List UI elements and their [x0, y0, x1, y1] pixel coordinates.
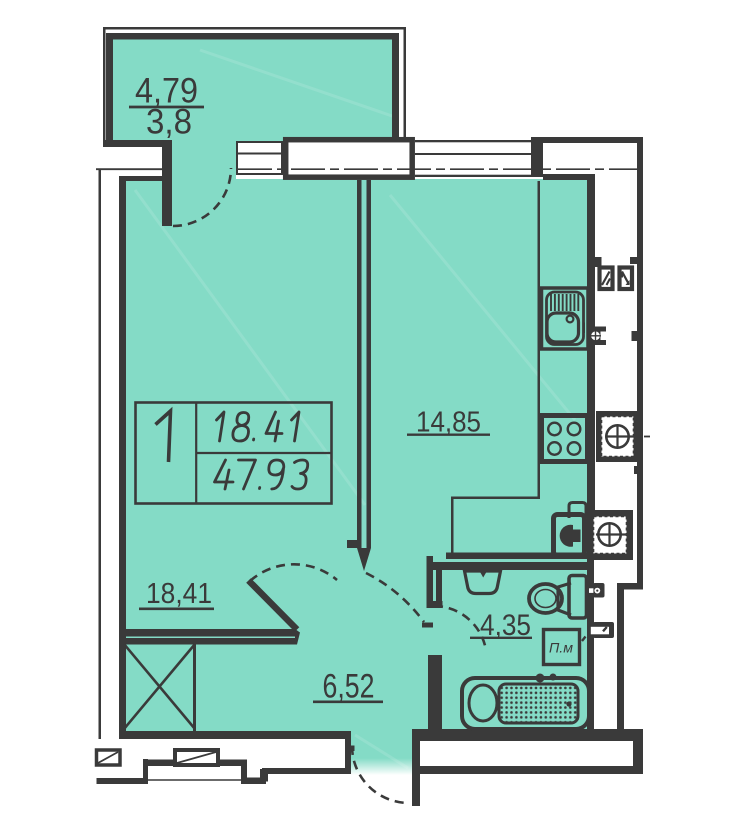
svg-text:18,41: 18,41: [146, 578, 212, 610]
svg-text:П.м: П.м: [549, 641, 573, 656]
svg-text:6,52: 6,52: [323, 668, 375, 706]
